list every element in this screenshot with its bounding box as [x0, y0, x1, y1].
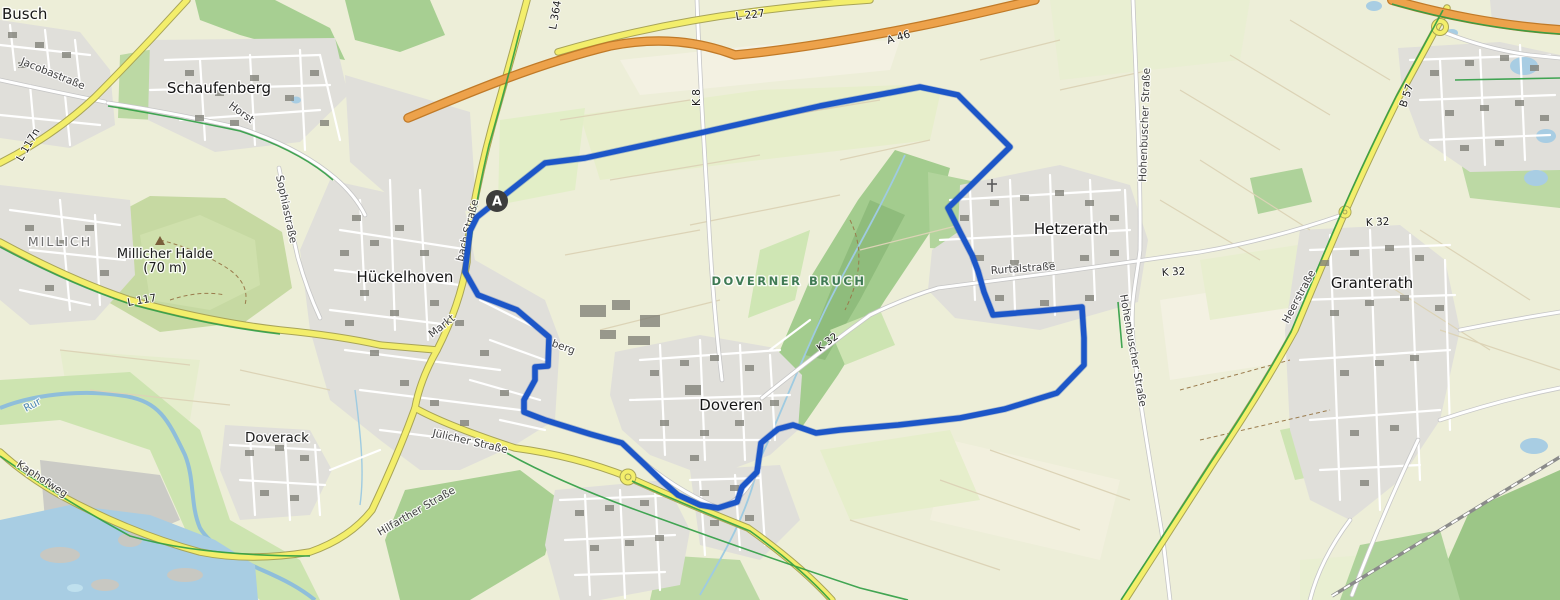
label-ref-k32-granterath: K 32 — [1366, 216, 1390, 229]
label-town-hueckelhoven: Hückelhoven — [357, 268, 454, 286]
label-suburb-millich: MILLICH — [28, 234, 92, 249]
label-town-doveren: Doveren — [699, 396, 762, 414]
route-start-marker-label: A — [492, 195, 502, 210]
label-ref-k8: K 8 — [691, 89, 703, 106]
route-start-marker[interactable]: A — [486, 190, 508, 212]
label-ref-k32-hetzerath: K 32 — [1161, 265, 1185, 279]
label-town-doverack: Doverack — [245, 430, 309, 446]
map-canvas[interactable]: Busch Schaufenberg Hückelhoven Doveren H… — [0, 0, 1560, 600]
label-town-hetzerath: Hetzerath — [1034, 220, 1108, 238]
label-millicher-halde-elevation: (70 m) — [143, 261, 186, 276]
label-millicher-halde: Millicher Halde — [117, 247, 213, 262]
label-town-schaufenberg: Schaufenberg — [167, 79, 271, 97]
label-town-busch: Busch — [2, 5, 47, 23]
label-town-granterath: Granterath — [1331, 274, 1413, 292]
label-area-doverner-bruch: DOVERNER BRUCH — [712, 274, 867, 288]
